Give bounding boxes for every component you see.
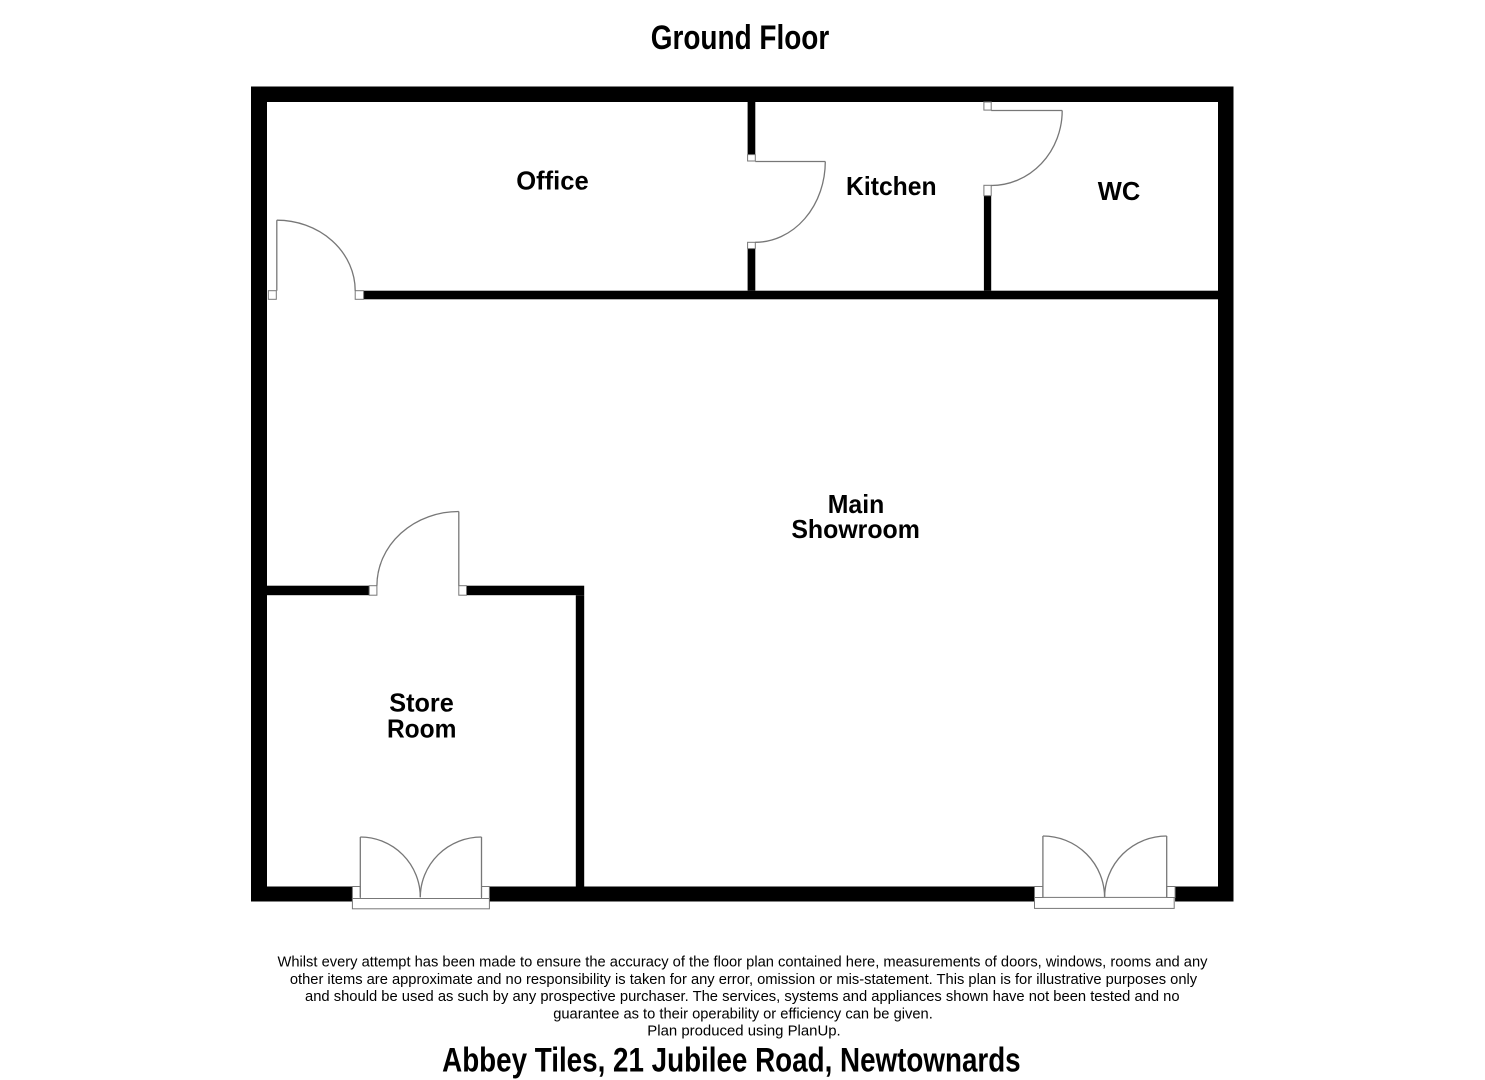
svg-text:Abbey Tiles, 21 Jubilee Road,: Abbey Tiles, 21 Jubilee Road, Newtownard… [442, 1042, 1021, 1080]
svg-text:Room: Room [387, 713, 457, 743]
svg-text:and should be used as such by: and should be used as such by any prospe… [305, 988, 1180, 1005]
svg-text:Kitchen: Kitchen [846, 171, 937, 201]
svg-text:guarantee as to their operabil: guarantee as to their operability or eff… [553, 1005, 933, 1022]
svg-text:Plan produced using PlanUp.: Plan produced using PlanUp. [647, 1023, 840, 1040]
svg-text:WC: WC [1098, 176, 1141, 206]
svg-text:Office: Office [516, 166, 589, 196]
svg-text:Showroom: Showroom [791, 514, 920, 544]
svg-text:other items are approximate an: other items are approximate and no respo… [290, 971, 1198, 988]
svg-text:Ground Floor: Ground Floor [651, 19, 830, 57]
svg-text:Whilst every attempt has been: Whilst every attempt has been made to en… [278, 954, 1208, 971]
